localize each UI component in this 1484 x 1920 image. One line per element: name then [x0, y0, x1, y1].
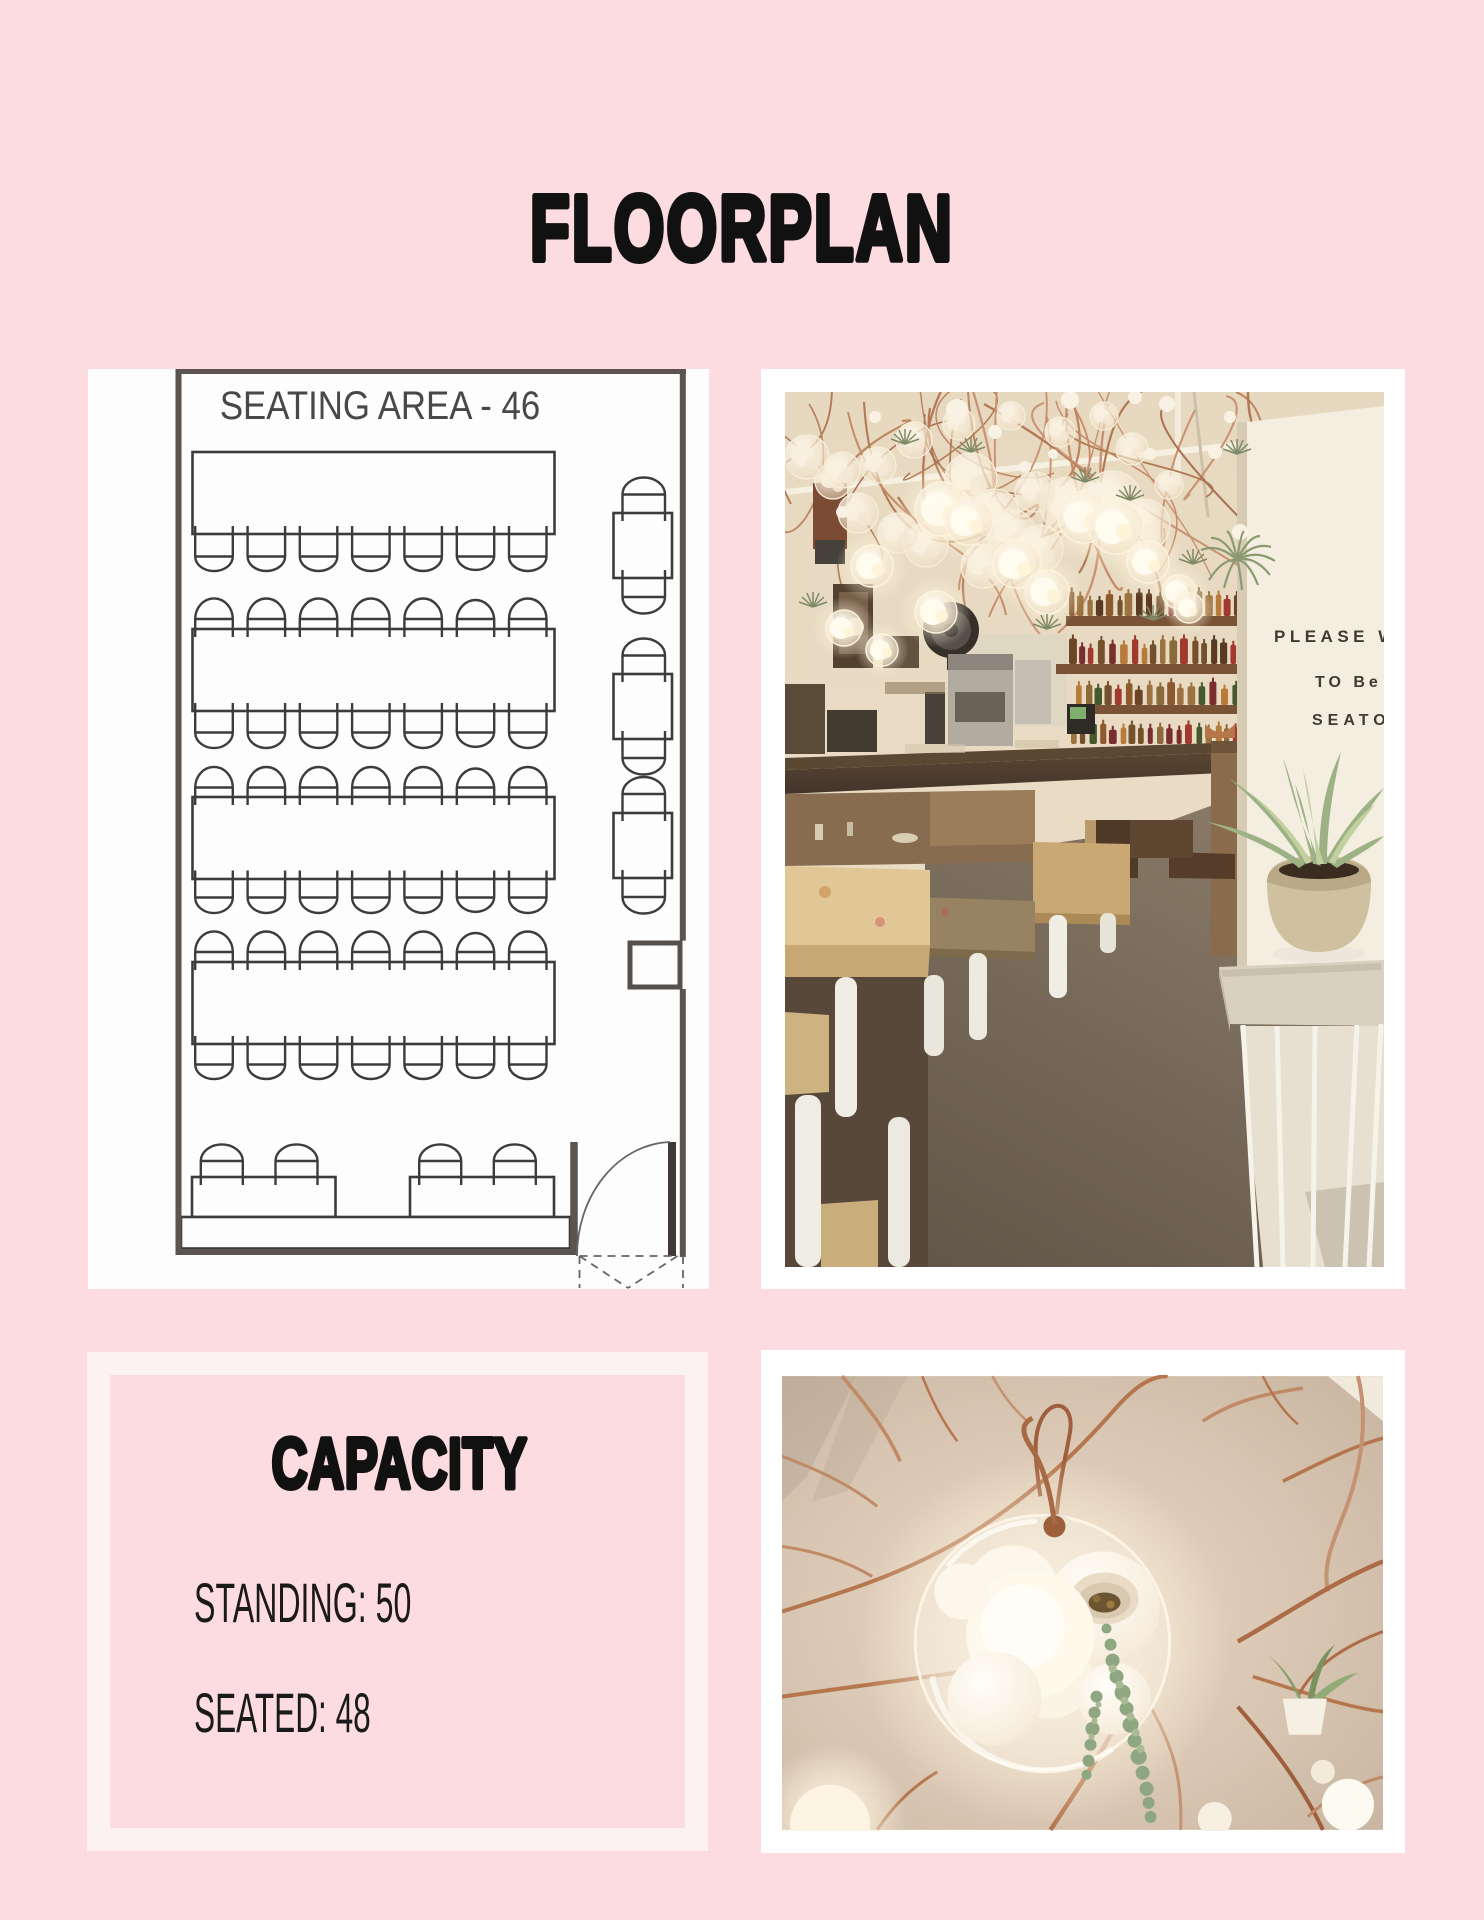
- svg-text:SEATING AREA - 46: SEATING AREA - 46: [220, 383, 540, 428]
- svg-text:CAPACITY: CAPACITY: [272, 1424, 528, 1503]
- svg-text:SEATO: SEATO: [1312, 712, 1384, 729]
- svg-text:PLEASE W: PLEASE W: [1274, 627, 1384, 646]
- svg-text:FLOORPLAN: FLOORPLAN: [530, 177, 954, 281]
- svg-text:TO Be: TO Be: [1315, 674, 1382, 691]
